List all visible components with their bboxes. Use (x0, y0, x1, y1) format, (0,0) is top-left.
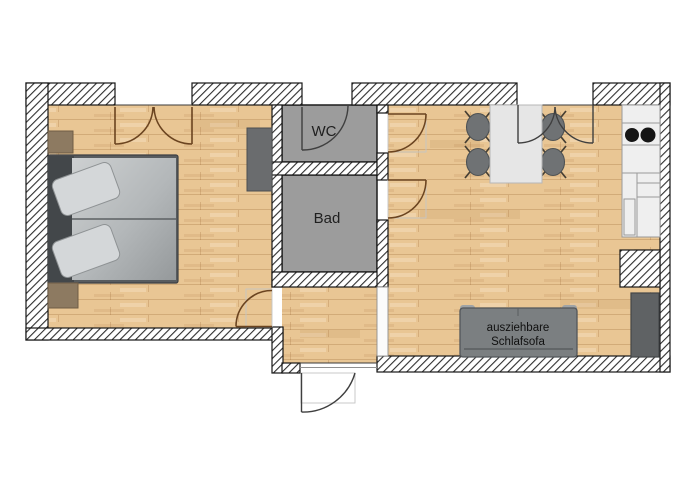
bed (48, 155, 178, 283)
wall-east-1 (377, 105, 388, 113)
wall-left (26, 83, 48, 340)
wall-east-2 (377, 153, 388, 180)
wc-label: WC (312, 123, 337, 140)
sofa-label-line2: Schlafsofa (491, 336, 545, 348)
sofa-label-line1: ausziehbare (487, 322, 550, 334)
floor-plan-page: WC Bad ausziehbare Schlafsofa (0, 0, 700, 500)
cooktop-burner-1 (625, 128, 639, 142)
counter-body (622, 105, 660, 237)
living-wardrobe (631, 293, 659, 357)
chair (540, 146, 566, 178)
entrance-door (301, 373, 355, 412)
hallway-floor (282, 285, 377, 363)
chair (465, 146, 491, 178)
wall-top-3 (352, 83, 517, 105)
cooktop-burner-2 (641, 128, 656, 143)
wall-bedroom-bottom (26, 328, 283, 340)
wall-hall-bottom (282, 363, 300, 373)
wall-step (272, 327, 283, 373)
wall-right (660, 83, 670, 372)
wall-top-2 (192, 83, 302, 105)
chair (465, 111, 491, 143)
dining-table (490, 105, 542, 183)
wall-wc-bad-divider (272, 162, 377, 175)
wall-bedroom-divider (272, 105, 282, 287)
bathroom-label: Bad (314, 210, 341, 227)
bedroom-cabinet (247, 128, 272, 191)
nightstand-top (48, 131, 73, 153)
wall-kitchen-niche (620, 250, 660, 287)
wall-top-4 (593, 83, 670, 105)
nightstand-bottom (48, 283, 78, 308)
kitchen-counter (622, 105, 660, 237)
wall-living-bottom (377, 356, 670, 372)
wall-east-3 (377, 220, 388, 287)
wall-bad-bottom (272, 272, 388, 287)
passage-opening (377, 287, 388, 356)
floor-plan-svg: WC Bad ausziehbare Schlafsofa (0, 0, 700, 500)
